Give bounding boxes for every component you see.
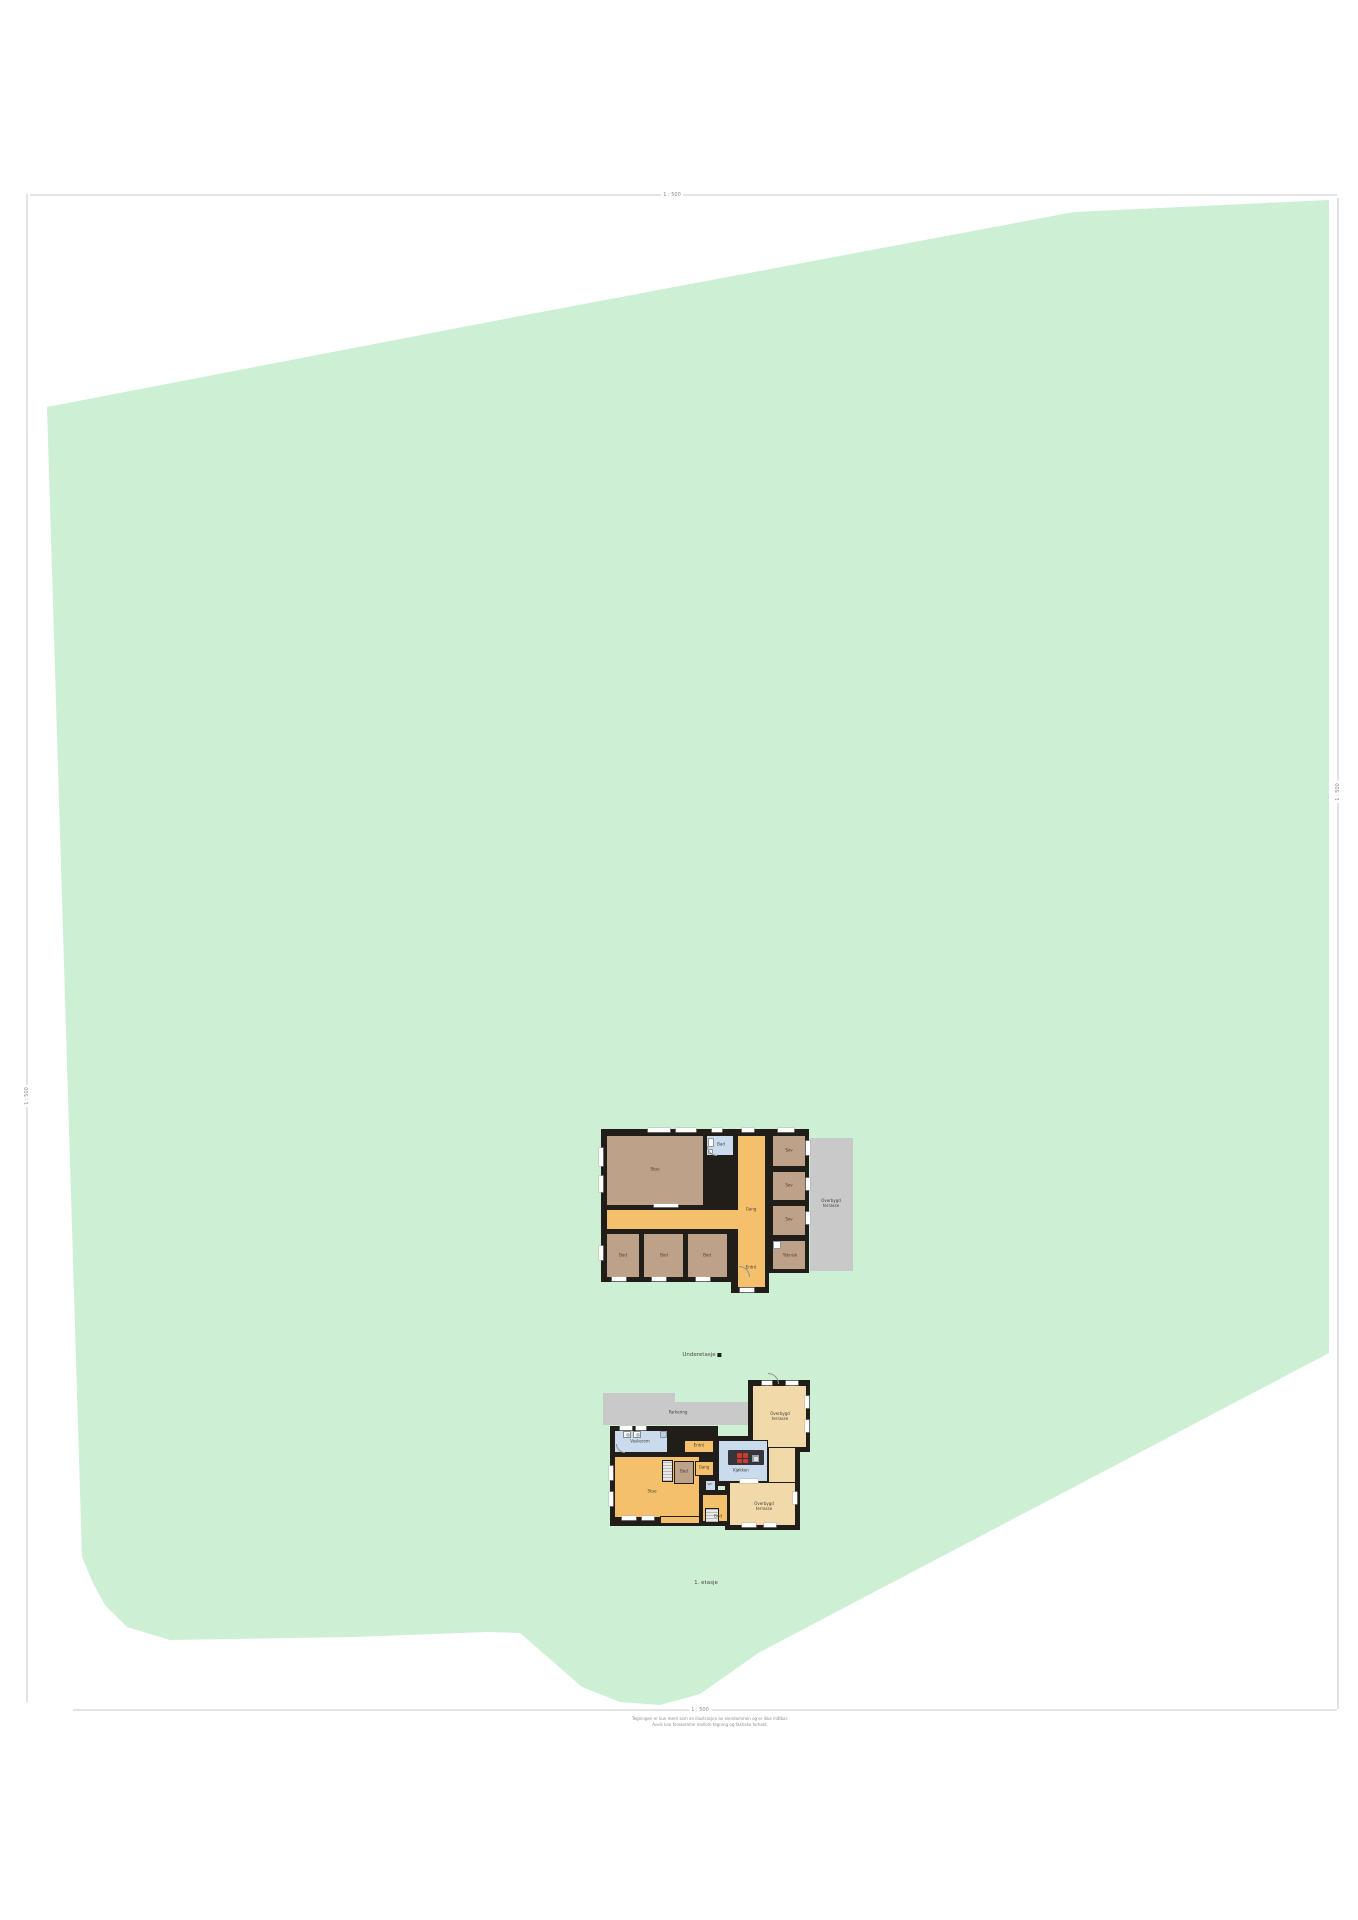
room-label-gang: Gang: [746, 1208, 757, 1213]
appliance-icon: [773, 1241, 781, 1249]
window-marker: [805, 1420, 809, 1432]
room-label-terrasse-top: Overbygd terrasse: [770, 1412, 790, 1422]
room-label-stue: Stue: [650, 1168, 659, 1173]
room-label-stue-lower: Stue: [647, 1490, 656, 1495]
window-marker: [620, 1426, 632, 1430]
lower-plan-caption: 1. etasje: [694, 1580, 718, 1586]
footer-disclaimer: Tegningen er kun ment som en illustrasjo…: [632, 1716, 788, 1728]
room-label-gang-lower: Gang: [699, 1466, 710, 1471]
room-label-bad-lower: Bad: [680, 1470, 688, 1475]
window-marker: [742, 1523, 756, 1527]
room-label-kjokken: Kjøkken: [733, 1469, 749, 1474]
parking-area: [603, 1393, 675, 1425]
stairs: [662, 1460, 673, 1482]
washer-icon: [633, 1431, 641, 1438]
room-label-sov2: Sov: [785, 1184, 792, 1189]
kitchen-sink-icon: [752, 1455, 759, 1462]
frame-left-line: [26, 194, 28, 1702]
window-marker: [806, 1141, 810, 1155]
door-opening-marker: [740, 1288, 754, 1292]
room-label-teknisk: Teknisk: [783, 1254, 798, 1259]
room-label-bad: Bad: [717, 1143, 725, 1148]
window-marker: [676, 1128, 696, 1132]
window-marker: [806, 1212, 810, 1224]
frame-scale-top: 1 : 500: [661, 192, 683, 198]
north-marker-icon: [718, 1353, 722, 1357]
window-marker: [642, 1516, 654, 1520]
upper-plan-caption: Underetasje: [682, 1352, 721, 1358]
window-marker: [742, 1128, 754, 1132]
window-marker: [648, 1128, 670, 1132]
frame-scale-left: 1 : 500: [24, 1085, 30, 1107]
window-marker: [806, 1178, 810, 1190]
window-marker: [612, 1277, 626, 1281]
room-label-wc: WC: [707, 1483, 712, 1487]
window-marker: [762, 1381, 772, 1385]
room-label-terrasse: Overbygd terrasse: [821, 1199, 841, 1209]
room-label-sov3: Sov: [785, 1218, 792, 1223]
window-marker: [805, 1396, 809, 1408]
washer-icon: [623, 1431, 631, 1438]
window-marker: [740, 1479, 758, 1483]
room-label-entre: Entré: [746, 1266, 757, 1271]
window-marker: [786, 1381, 798, 1385]
room-terrasse-link: [768, 1448, 796, 1485]
window-marker: [636, 1426, 646, 1430]
window-marker: [652, 1277, 666, 1281]
room-label-sov1: Sov: [785, 1149, 792, 1154]
frame-scale-right: 1 : 500: [1335, 781, 1341, 803]
room-label-bod3: Bod: [703, 1254, 711, 1259]
frame-top-line: [30, 194, 1337, 196]
room-label-parkering: Parkering: [669, 1411, 688, 1416]
room-label-terrasse-bottom: Overbygd terrasse: [754, 1502, 774, 1512]
plot-polygon: [0, 0, 1358, 1920]
frame-right-line: [1337, 198, 1339, 1709]
window-marker: [622, 1516, 636, 1520]
room-label-entre-lower: Entré: [694, 1444, 705, 1449]
window-marker: [778, 1128, 794, 1132]
window-marker: [712, 1128, 722, 1132]
room-label-bod1: Bod: [619, 1254, 627, 1259]
window-marker: [764, 1523, 776, 1527]
room-label-bod2: Bod: [660, 1254, 668, 1259]
room-label-vaskerom: Vaskerom: [630, 1440, 650, 1445]
window-marker: [609, 1492, 613, 1506]
window-marker: [654, 1204, 678, 1207]
window-marker: [609, 1466, 613, 1480]
wc-sign-icon: [660, 1431, 667, 1438]
window-marker: [793, 1492, 797, 1504]
stove-burners-icon: [737, 1453, 748, 1463]
window-marker: [599, 1176, 603, 1192]
window-marker: [599, 1148, 603, 1166]
room-label-bod-lower: Bod: [714, 1515, 722, 1520]
window-marker: [599, 1246, 603, 1260]
site-plan-page: 1 : 500 1 : 500 1 : 500 1 : 500: [0, 0, 1358, 1920]
room-gang-horizontal: [606, 1209, 738, 1230]
window-marker: [696, 1277, 710, 1281]
room-stue-step: [660, 1516, 700, 1524]
frame-scale-bottom: 1 : 500: [689, 1707, 711, 1713]
